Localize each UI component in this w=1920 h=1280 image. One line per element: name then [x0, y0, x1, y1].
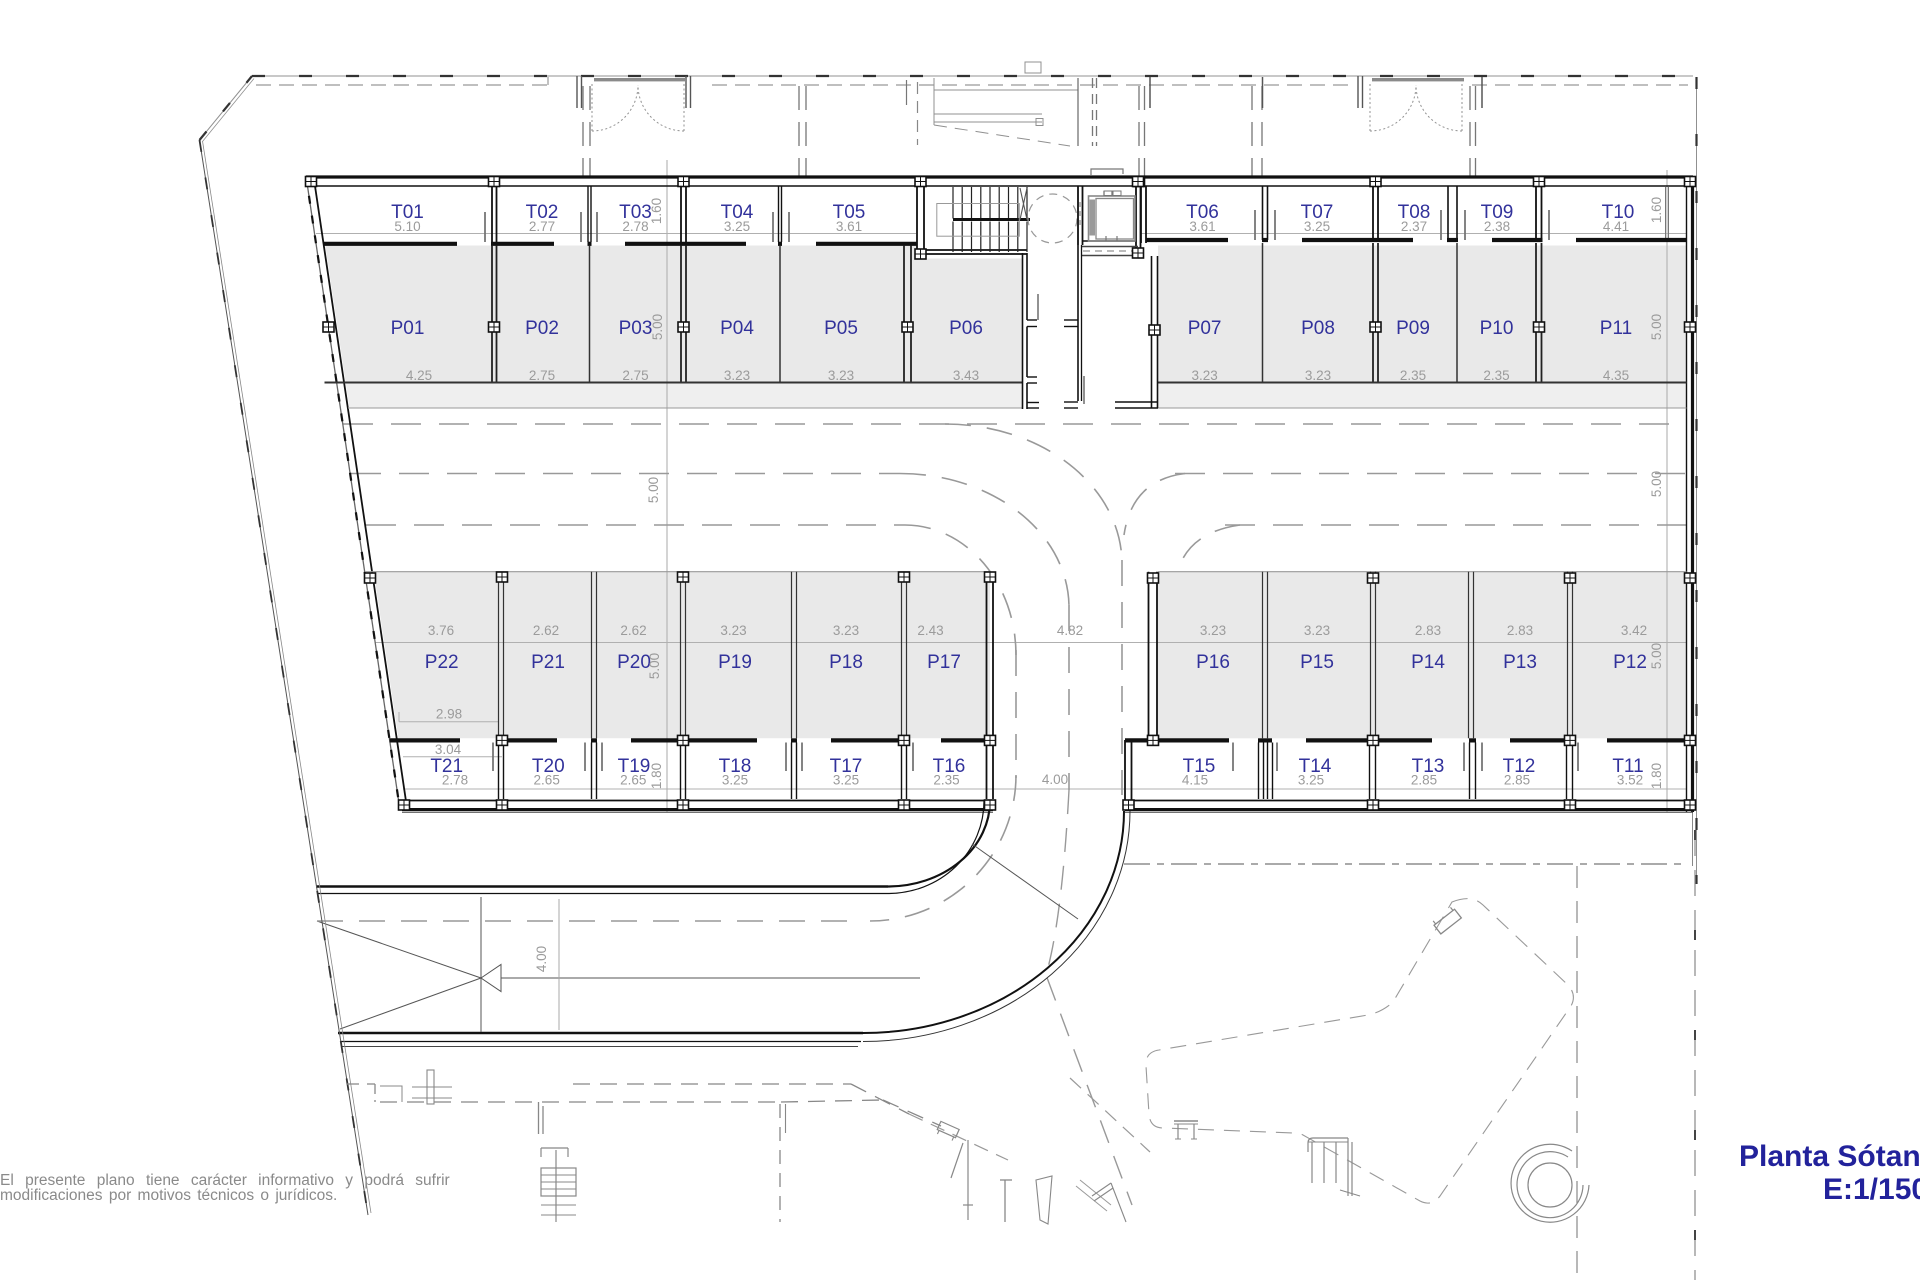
svg-text:1.80: 1.80 [1649, 763, 1664, 789]
svg-text:2.37: 2.37 [1401, 219, 1427, 234]
svg-text:4.15: 4.15 [1182, 773, 1208, 788]
svg-text:2.35: 2.35 [1483, 368, 1509, 383]
svg-text:4.82: 4.82 [1057, 623, 1083, 638]
svg-text:2.65: 2.65 [534, 773, 560, 788]
svg-text:2.85: 2.85 [1411, 773, 1437, 788]
svg-text:5.00: 5.00 [1649, 643, 1664, 669]
svg-text:2.77: 2.77 [529, 219, 555, 234]
svg-text:P02: P02 [525, 318, 559, 339]
svg-text:4.00: 4.00 [1042, 772, 1068, 787]
svg-text:2.78: 2.78 [442, 773, 468, 788]
svg-text:P21: P21 [531, 652, 565, 673]
svg-text:P20: P20 [617, 652, 651, 673]
svg-text:3.23: 3.23 [720, 623, 746, 638]
svg-text:3.23: 3.23 [1305, 368, 1331, 383]
svg-text:P10: P10 [1480, 318, 1514, 339]
svg-text:4.25: 4.25 [406, 368, 432, 383]
svg-text:2.43: 2.43 [917, 623, 943, 638]
svg-text:P05: P05 [824, 318, 858, 339]
svg-text:1.80: 1.80 [649, 763, 664, 789]
svg-text:3.61: 3.61 [1189, 219, 1215, 234]
svg-text:P11: P11 [1600, 318, 1632, 339]
svg-text:2.62: 2.62 [533, 623, 559, 638]
svg-text:3.23: 3.23 [1200, 623, 1226, 638]
svg-text:P22: P22 [425, 652, 459, 673]
svg-text:2.65: 2.65 [620, 773, 646, 788]
svg-text:2.75: 2.75 [529, 368, 555, 383]
svg-text:2.98: 2.98 [436, 707, 462, 722]
svg-text:3.42: 3.42 [1621, 623, 1647, 638]
svg-text:P08: P08 [1301, 318, 1335, 339]
svg-text:5.00: 5.00 [646, 477, 661, 503]
svg-text:modificaciones por motivos téc: modificaciones por motivos técnicos o ju… [0, 1187, 337, 1204]
svg-text:3.23: 3.23 [1304, 623, 1330, 638]
svg-text:P09: P09 [1396, 318, 1430, 339]
svg-text:2.35: 2.35 [1400, 368, 1426, 383]
svg-text:P16: P16 [1196, 652, 1230, 673]
svg-text:1.60: 1.60 [649, 198, 664, 224]
svg-text:3.25: 3.25 [833, 773, 859, 788]
svg-text:3.25: 3.25 [1298, 773, 1324, 788]
svg-text:5.00: 5.00 [1649, 314, 1664, 340]
svg-text:3.25: 3.25 [1304, 219, 1330, 234]
svg-text:P19: P19 [718, 652, 752, 673]
svg-text:P12: P12 [1613, 652, 1647, 673]
svg-text:3.76: 3.76 [428, 623, 454, 638]
svg-text:4.00: 4.00 [534, 946, 549, 972]
svg-text:P15: P15 [1300, 652, 1334, 673]
svg-text:P04: P04 [720, 318, 754, 339]
svg-text:3.52: 3.52 [1617, 773, 1643, 788]
svg-text:3.23: 3.23 [828, 368, 854, 383]
svg-text:2.35: 2.35 [933, 773, 959, 788]
svg-text:3.23: 3.23 [833, 623, 859, 638]
svg-text:E:1/150: E:1/150 [1823, 1173, 1920, 1206]
svg-text:5.00: 5.00 [650, 314, 665, 340]
svg-text:P06: P06 [949, 318, 983, 339]
svg-text:2.83: 2.83 [1507, 623, 1533, 638]
svg-text:P17: P17 [927, 652, 961, 673]
svg-text:3.43: 3.43 [953, 368, 979, 383]
svg-text:2.75: 2.75 [622, 368, 648, 383]
svg-text:4.41: 4.41 [1603, 219, 1629, 234]
svg-text:5.00: 5.00 [647, 653, 662, 679]
svg-text:2.85: 2.85 [1504, 773, 1530, 788]
svg-text:P01: P01 [391, 318, 425, 339]
svg-text:5.00: 5.00 [1649, 471, 1664, 497]
svg-text:3.25: 3.25 [724, 219, 750, 234]
svg-text:4.35: 4.35 [1603, 368, 1629, 383]
svg-text:3.23: 3.23 [724, 368, 750, 383]
svg-text:P07: P07 [1188, 318, 1222, 339]
svg-text:3.61: 3.61 [836, 219, 862, 234]
svg-text:5.10: 5.10 [394, 219, 420, 234]
svg-text:3.23: 3.23 [1191, 368, 1217, 383]
svg-text:P14: P14 [1411, 652, 1445, 673]
svg-text:2.62: 2.62 [620, 623, 646, 638]
svg-text:3.25: 3.25 [722, 773, 748, 788]
svg-text:P13: P13 [1503, 652, 1537, 673]
svg-text:P03: P03 [619, 318, 653, 339]
svg-text:2.83: 2.83 [1415, 623, 1441, 638]
svg-text:3.04: 3.04 [435, 742, 462, 757]
svg-text:2.38: 2.38 [1484, 219, 1510, 234]
svg-text:1.60: 1.60 [1649, 197, 1664, 223]
svg-text:P18: P18 [829, 652, 863, 673]
svg-text:2.78: 2.78 [622, 219, 648, 234]
svg-text:Planta Sótano: Planta Sótano [1739, 1140, 1920, 1173]
